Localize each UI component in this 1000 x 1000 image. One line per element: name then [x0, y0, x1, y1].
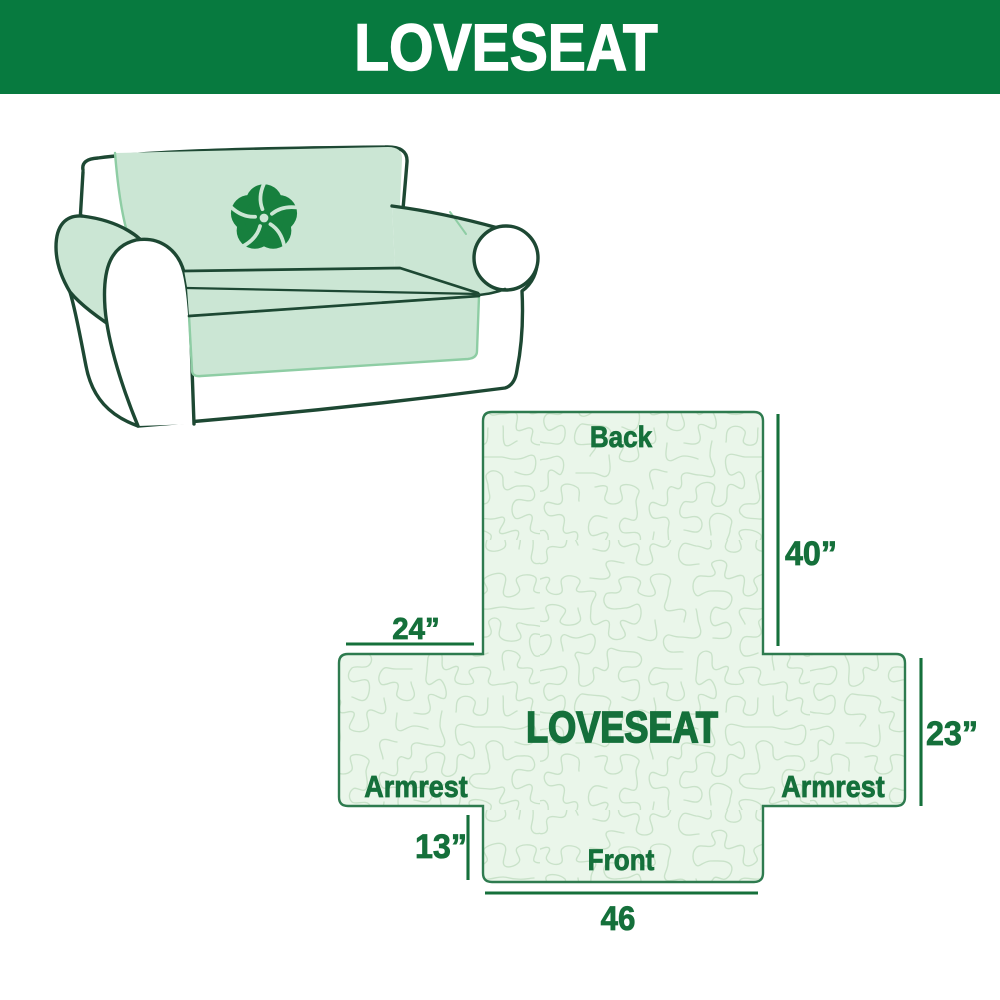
svg-text:Front: Front [588, 843, 655, 876]
svg-text:23”: 23” [926, 715, 978, 753]
svg-text:Back: Back [590, 420, 653, 453]
svg-text:40”: 40” [785, 535, 837, 573]
svg-text:LOVESEAT: LOVESEAT [526, 703, 718, 752]
svg-text:Armrest: Armrest [781, 770, 885, 804]
svg-text:13”: 13” [415, 828, 467, 866]
svg-text:46: 46 [601, 899, 636, 938]
svg-text:Armrest: Armrest [364, 770, 468, 804]
svg-text:24”: 24” [392, 612, 439, 646]
